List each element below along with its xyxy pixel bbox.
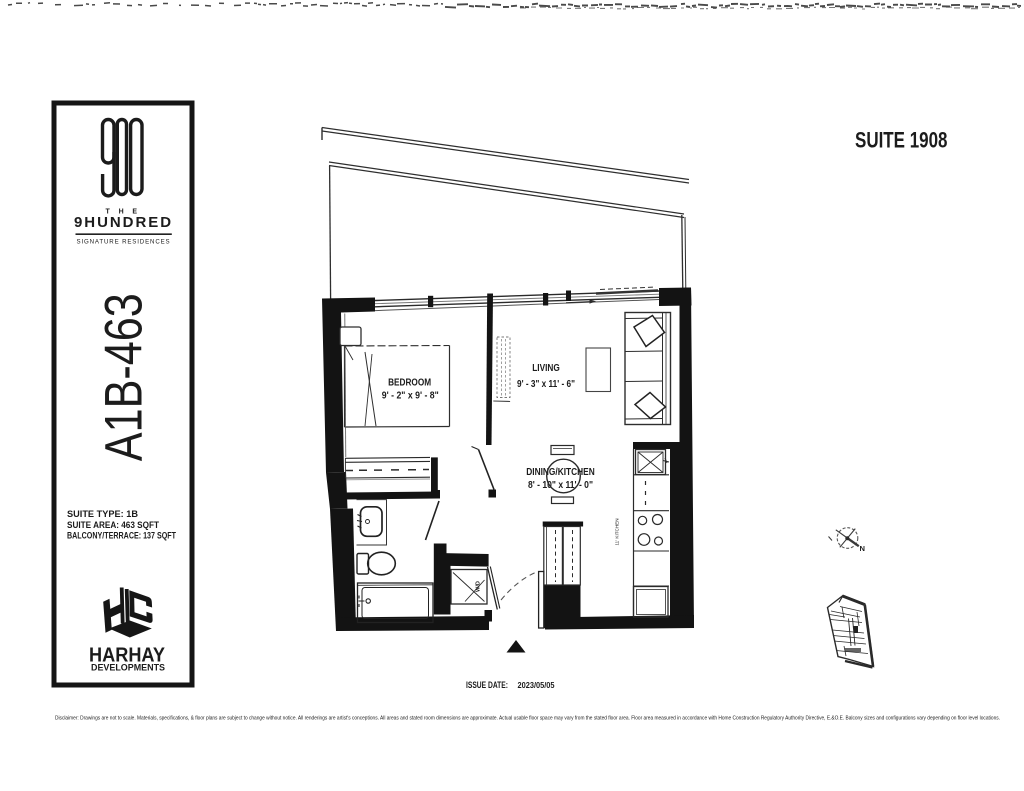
svg-text:9' - 3" x 11' - 6": 9' - 3" x 11' - 6": [517, 379, 575, 390]
svg-text:11' KITCHEN: 11' KITCHEN: [615, 518, 620, 545]
svg-text:9HUNDRED: 9HUNDRED: [74, 214, 173, 231]
svg-text:LIVING: LIVING: [532, 363, 560, 374]
svg-text:SUITE 1908: SUITE 1908: [855, 128, 948, 153]
svg-text:SUITE TYPE: 1B: SUITE TYPE: 1B: [67, 509, 138, 519]
svg-text:N: N: [860, 544, 865, 553]
svg-text:SIGNATURE RESIDENCES: SIGNATURE RESIDENCES: [77, 239, 171, 246]
svg-text:8' - 10" x 11' - 0": 8' - 10" x 11' - 0": [528, 480, 593, 491]
svg-text:9' - 2" x 9' - 8": 9' - 2" x 9' - 8": [382, 390, 439, 401]
svg-text:W/D: W/D: [476, 581, 482, 592]
svg-text:SUITE AREA: 463 SQFT: SUITE AREA: 463 SQFT: [67, 520, 159, 530]
svg-text:DEVELOPMENTS: DEVELOPMENTS: [91, 662, 166, 673]
svg-text:A1B-463: A1B-463: [95, 293, 154, 461]
svg-text:Disclaimer: Drawings are not t: Disclaimer: Drawings are not to scale. M…: [55, 715, 1000, 721]
svg-text:ISSUE DATE:: ISSUE DATE:: [466, 680, 508, 690]
svg-text:BALCONY/TERRACE: 137 SQFT: BALCONY/TERRACE: 137 SQFT: [67, 531, 176, 541]
svg-text:BEDROOM: BEDROOM: [388, 378, 431, 389]
svg-text:2023/05/05: 2023/05/05: [518, 681, 555, 690]
svg-text:DINING/KITCHEN: DINING/KITCHEN: [526, 467, 595, 478]
